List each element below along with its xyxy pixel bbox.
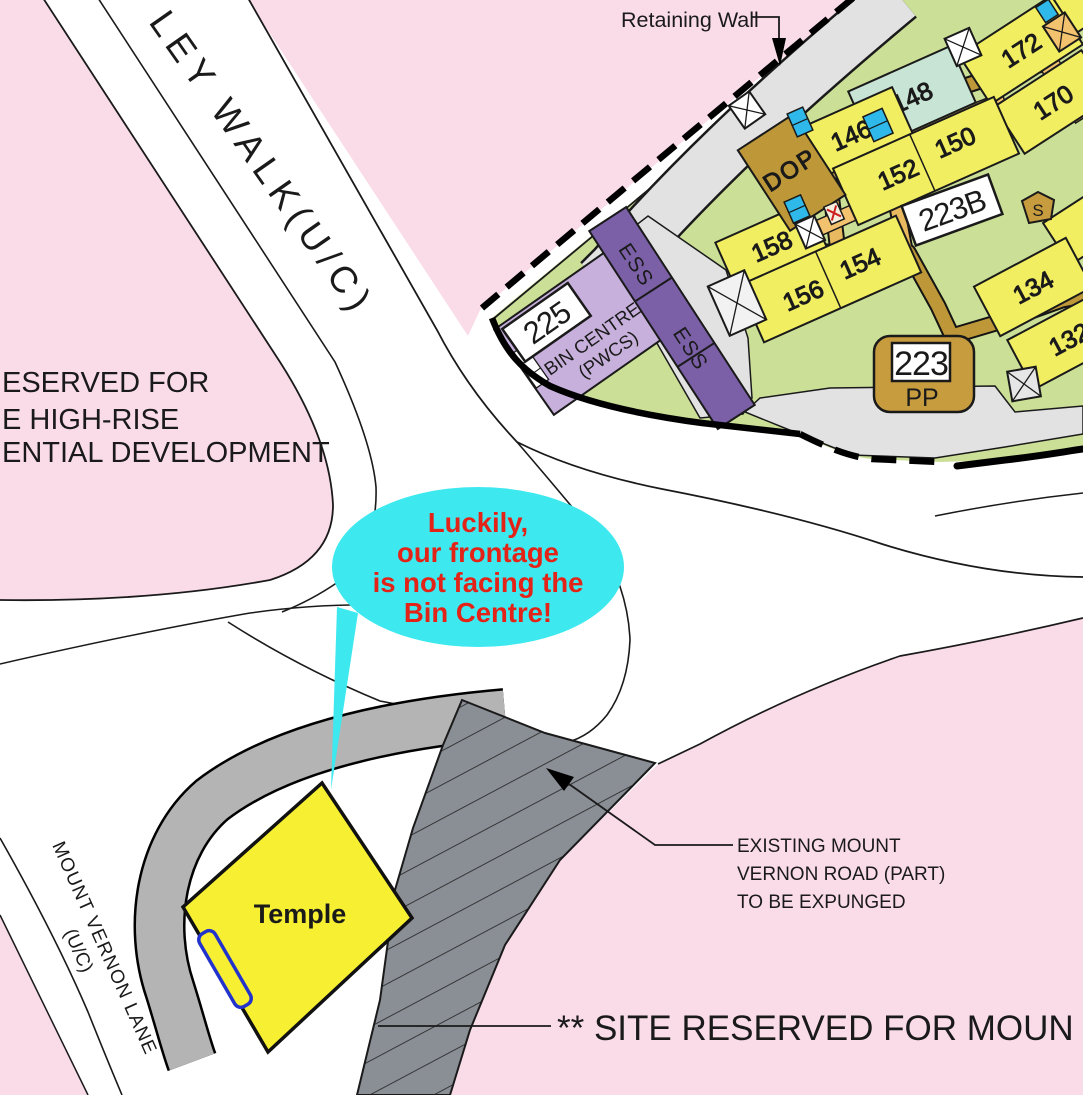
site-reserved-label: ** SITE RESERVED FOR MOUN: [557, 1009, 1074, 1048]
bubble-line-2: our frontage: [397, 537, 559, 568]
expunged-label-2: VERNON ROAD (PART): [737, 864, 945, 885]
reserved-label-3: ENTIAL DEVELOPMENT: [2, 437, 330, 469]
site-plan-svg: 172 170 148 146 150 152 158: [0, 0, 1083, 1095]
expunged-label-3: TO BE EXPUNGED: [737, 892, 906, 913]
bubble-line-1: Luckily,: [428, 507, 528, 538]
pp-label: PP: [905, 384, 938, 412]
retaining-wall-label: Retaining Wall: [621, 8, 759, 32]
reserved-label-1: ESERVED FOR: [2, 367, 209, 399]
bubble-line-3: is not facing the: [373, 567, 584, 598]
expunged-label-1: EXISTING MOUNT: [737, 836, 901, 857]
bubble-line-4: Bin Centre!: [404, 597, 552, 628]
block-223-pp: 223 PP: [874, 336, 974, 412]
site-plan-map: 172 170 148 146 150 152 158: [0, 0, 1083, 1095]
substation-label: S: [1032, 201, 1043, 220]
temple-label: Temple: [254, 899, 347, 929]
reserved-label-2: E HIGH-RISE: [2, 404, 179, 436]
block-223-label: 223: [894, 345, 948, 383]
